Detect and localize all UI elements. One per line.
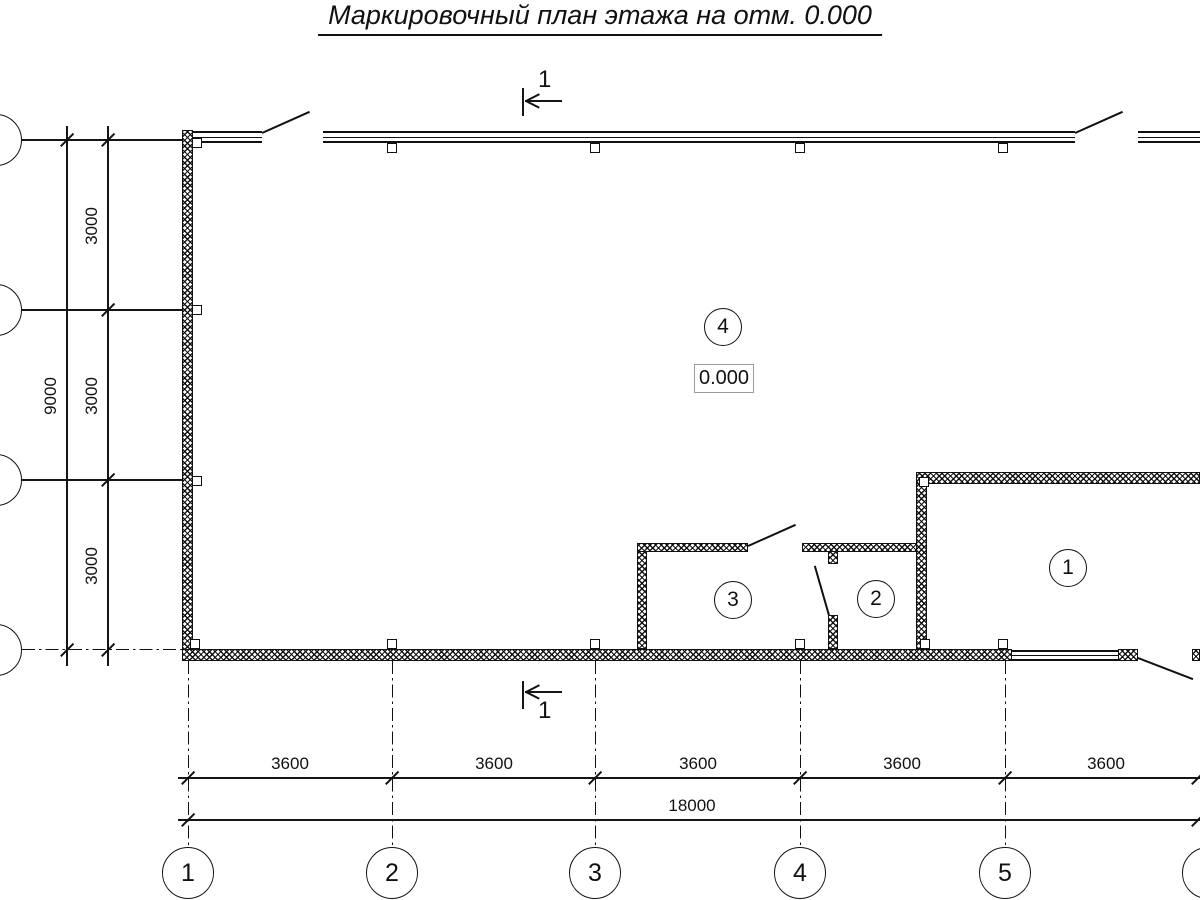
column-mark [387,639,397,649]
dim-label-3600-3: 3600 [663,754,733,774]
column-mark [795,143,805,153]
column-mark [998,639,1008,649]
row-line-1 [22,139,183,140]
row-axis-circle-bottom [0,624,22,676]
column-axis-circle-5: 5 [979,847,1031,899]
window-band-top-3 [1138,131,1200,143]
wall-room1-left [916,472,927,649]
wall-bottom [182,649,1012,661]
dim-line-vertical-9000 [66,126,67,666]
drawing-title: Маркировочный план этажа на отм. 0.000 [318,0,882,36]
dim-label-3600-2: 3600 [459,754,529,774]
room-number-1-label: 1 [1062,556,1074,580]
floor-plan-canvas: Маркировочный план этажа на отм. 0.000 3… [0,0,1200,900]
door-leaf-room3 [748,524,796,547]
column-axis-label-1: 1 [181,859,195,888]
elevation-mark: 0.000 [694,364,754,393]
row-axis-circle-3 [0,454,22,506]
section-label-top: 1 [538,66,551,94]
column-axis-label-5: 5 [998,859,1012,888]
column-mark [998,143,1008,153]
room-number-1: 1 [1049,549,1087,587]
dim-line-bays [178,777,1200,778]
door-leaf-top-left [262,110,310,133]
door-leaf-top-right [1075,110,1123,133]
window-band-top-2 [323,131,1075,143]
wall-room3-left [637,543,647,649]
wall-pier-bottom-right [1118,649,1138,661]
dim-label-9000: 9000 [41,366,61,426]
column-mark [190,639,200,649]
wall-room3-top [637,543,748,552]
room-number-2: 2 [857,580,895,618]
section-line-top [522,88,524,116]
column-axis-circle-1: 1 [162,847,214,899]
column-mark [920,639,930,649]
row-axis-circle-top [0,114,22,166]
wall-corner-bottom-right [1192,649,1200,661]
dim-line-vertical-3000 [107,126,108,666]
row-line-4-dashdot [22,649,183,650]
room-number-3-label: 3 [727,588,739,612]
column-axis-circle-2: 2 [366,847,418,899]
elevation-value: 0.000 [699,367,749,390]
dim-label-18000: 18000 [652,796,732,816]
section-label-bottom: 1 [538,697,551,725]
room-number-4-label: 4 [717,315,729,339]
column-axis-label-4: 4 [793,859,807,888]
column-mark [795,639,805,649]
column-mark [192,476,202,486]
wall-room1-top [916,472,1200,484]
dim-label-3000-3: 3000 [82,536,102,596]
column-axis-label-2: 2 [385,859,399,888]
section-line-bottom [522,681,524,709]
room-number-3: 3 [714,581,752,619]
column-mark [192,138,202,148]
dim-label-3600-4: 3600 [867,754,937,774]
wall-left [182,130,193,661]
column-mark [919,477,929,487]
door-leaf-room2 [814,565,830,616]
wall-room2-top [802,543,917,552]
room-number-4: 4 [704,308,742,346]
column-axis-circle-6: 6 [1182,847,1200,899]
column-axis-circle-3: 3 [569,847,621,899]
dim-label-3600-1: 3600 [255,754,325,774]
window-band-top-1 [193,131,262,143]
column-mark [590,143,600,153]
door-leaf-bottom-right [1138,657,1194,680]
row-line-2 [22,309,183,310]
dim-label-3600-5: 3600 [1071,754,1141,774]
dim-line-total [178,819,1200,820]
column-mark [387,143,397,153]
column-axis-circle-4: 4 [774,847,826,899]
column-mark [590,639,600,649]
column-mark [192,305,202,315]
dim-label-3000-2: 3000 [82,366,102,426]
room-number-2-label: 2 [870,587,882,611]
column-axis-label-3: 3 [588,859,602,888]
row-line-3 [22,479,183,480]
wall-room2-jamb-upper [828,551,838,564]
row-axis-circle-2 [0,284,22,336]
dim-label-3000-1: 3000 [82,196,102,256]
window-band-bottom [1012,650,1118,661]
wall-room2-jamb-lower [828,615,838,649]
